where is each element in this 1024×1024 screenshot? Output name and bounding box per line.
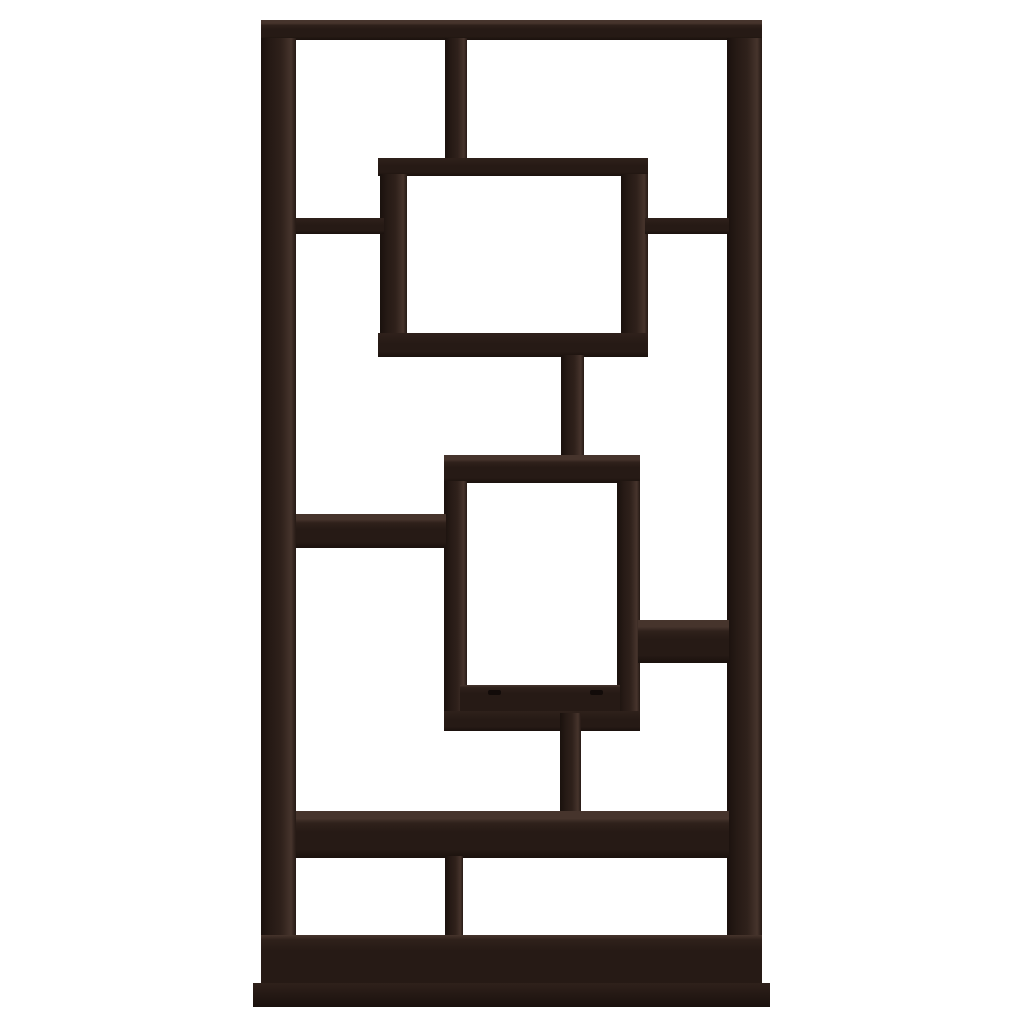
upper-divider bbox=[445, 38, 467, 160]
middle-shelf-right bbox=[638, 620, 729, 663]
cube-upper-top bbox=[378, 158, 648, 176]
dowel-hole bbox=[488, 690, 501, 695]
cube-lower-bottom bbox=[460, 685, 620, 713]
connector-stem-lower bbox=[560, 713, 581, 813]
cube-upper-left bbox=[380, 174, 407, 337]
dowel-hole bbox=[590, 690, 603, 695]
right-side-panel bbox=[727, 38, 762, 988]
base-plinth bbox=[253, 983, 770, 1007]
upper-shelf-right bbox=[645, 218, 729, 234]
cube-upper-right bbox=[621, 174, 648, 337]
cube-lower-left bbox=[444, 481, 467, 715]
lower-divider bbox=[445, 856, 463, 938]
upper-shelf-left bbox=[296, 218, 384, 234]
product-photo bbox=[0, 0, 1024, 1024]
wide-shelf bbox=[296, 811, 729, 858]
top-panel bbox=[261, 20, 762, 40]
connector-stem-upper bbox=[561, 355, 584, 457]
middle-shelf-left bbox=[296, 514, 446, 548]
bookcase bbox=[0, 0, 1024, 1024]
left-side-panel bbox=[261, 38, 296, 988]
cube-lower-right bbox=[617, 481, 640, 715]
cube-lower-top bbox=[444, 455, 640, 483]
cube-upper-bottom bbox=[378, 333, 648, 357]
bottom-deck bbox=[261, 935, 762, 987]
cube-lower-rail bbox=[444, 711, 640, 731]
